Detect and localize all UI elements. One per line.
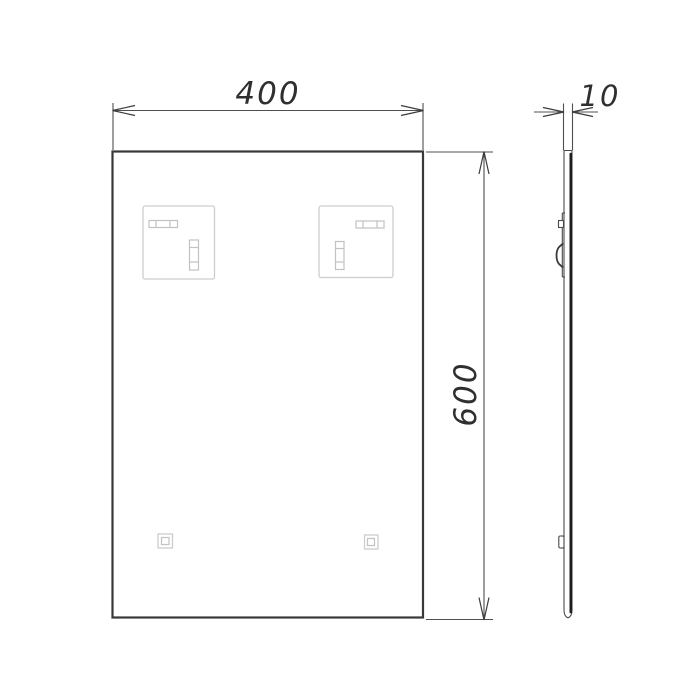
width-dimension-label: 400 xyxy=(235,76,300,112)
clip-body xyxy=(559,536,564,548)
height-dimension: 600 xyxy=(426,152,493,621)
side-clip-profile xyxy=(559,536,565,548)
bracket-tab xyxy=(559,221,564,228)
thickness-dimension: 10 xyxy=(534,79,620,150)
drawing-canvas: 400 600 10 xyxy=(0,0,700,700)
technical-drawing: 400 600 10 xyxy=(0,0,700,700)
front-view xyxy=(113,152,424,618)
height-dimension-label: 600 xyxy=(448,361,484,426)
width-dimension: 400 xyxy=(113,76,424,150)
side-view xyxy=(557,151,573,618)
thickness-dimension-label: 10 xyxy=(580,79,621,113)
bracket-hook xyxy=(557,244,563,267)
